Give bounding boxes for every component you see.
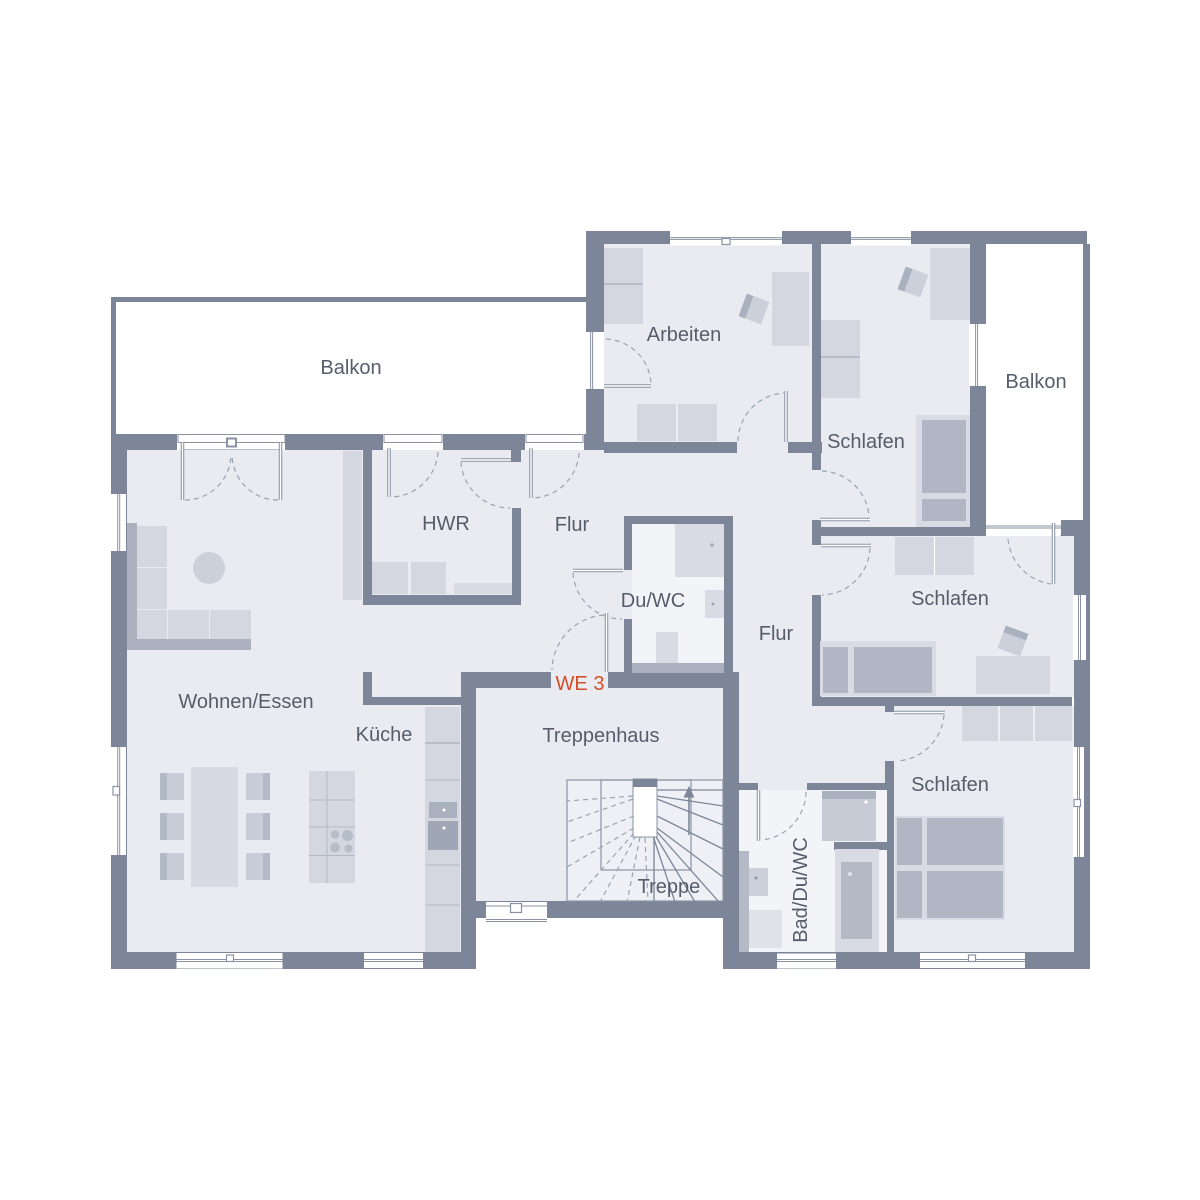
svg-text:Schlafen: Schlafen — [827, 431, 905, 453]
svg-text:WE 3: WE 3 — [556, 673, 605, 695]
svg-text:Flur: Flur — [759, 623, 794, 645]
svg-text:Du/WC: Du/WC — [621, 590, 685, 612]
svg-text:Treppe: Treppe — [638, 876, 701, 898]
svg-text:Arbeiten: Arbeiten — [647, 324, 722, 346]
svg-text:Wohnen/Essen: Wohnen/Essen — [178, 691, 313, 713]
svg-text:Balkon: Balkon — [320, 357, 381, 379]
svg-text:Treppenhaus: Treppenhaus — [542, 725, 659, 747]
svg-text:Flur: Flur — [555, 514, 590, 536]
svg-text:Balkon: Balkon — [1005, 371, 1066, 393]
svg-text:HWR: HWR — [422, 513, 470, 535]
svg-text:Küche: Küche — [356, 724, 413, 746]
svg-text:Schlafen: Schlafen — [911, 588, 989, 610]
svg-text:Bad/Du/WC: Bad/Du/WC — [790, 837, 812, 943]
svg-text:Schlafen: Schlafen — [911, 774, 989, 796]
